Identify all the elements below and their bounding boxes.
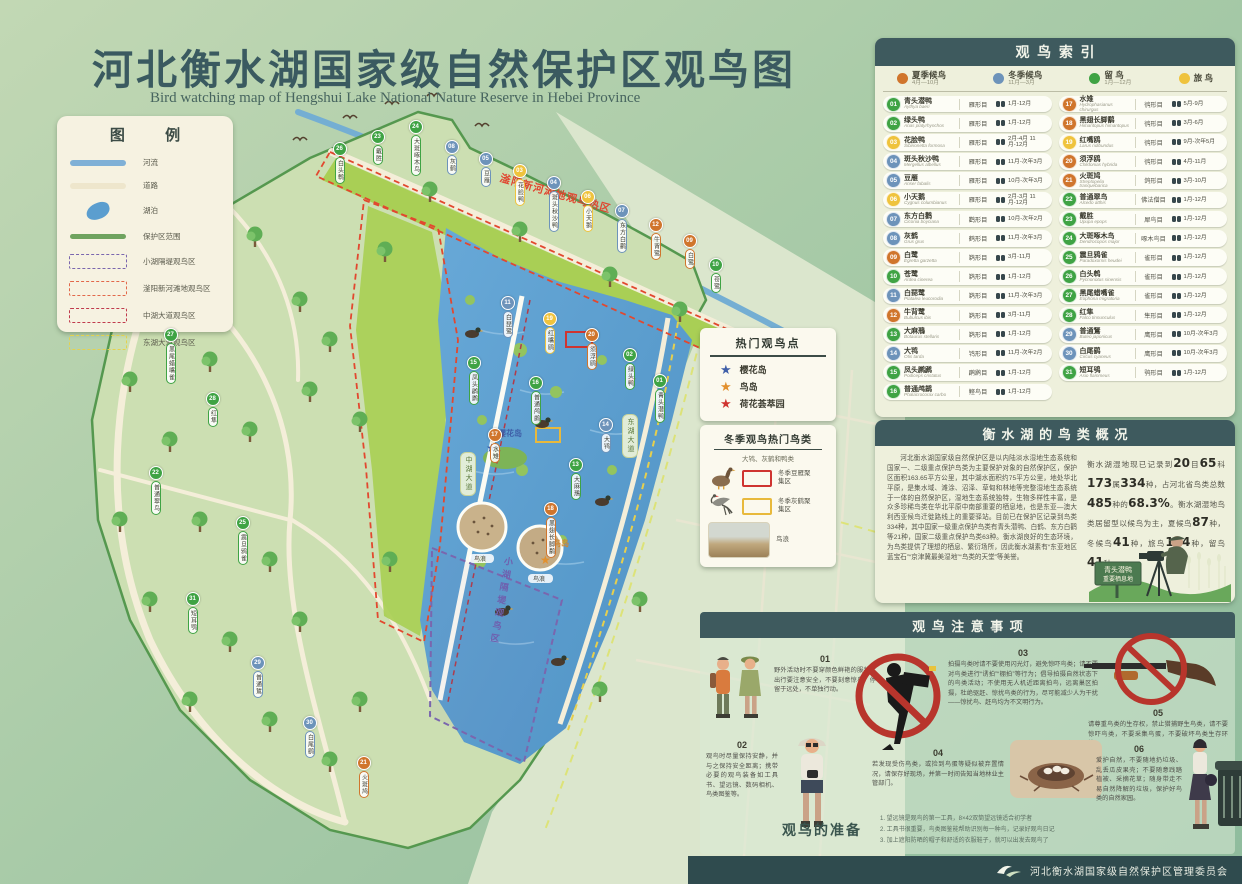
bird-latin-name: Otis tarda xyxy=(904,355,956,360)
binoculars-icon xyxy=(996,235,1005,241)
binoculars-icon xyxy=(996,370,1005,376)
winter-zone-goose: 冬季豆雁聚集区 xyxy=(708,466,828,490)
star-icon: ★ xyxy=(720,397,732,410)
nest-photo xyxy=(1010,740,1102,798)
flat-zone-swatch xyxy=(69,281,127,296)
bird-months: 5月-9月 xyxy=(1184,101,1225,107)
bird-latin-name: Streptopelia tranquebarica xyxy=(1080,180,1132,189)
season-legend: 夏季候鸟4月—10月 冬季候鸟11月—3月 留 鸟1月—12月 旅 鸟 xyxy=(883,66,1227,92)
binoculars-icon xyxy=(996,274,1005,280)
map-tag-28: 28红隼 xyxy=(205,392,220,427)
map-tag-31: 31短耳鸮 xyxy=(185,592,200,634)
bird-latin-name: Ciconia boyciana xyxy=(904,220,956,225)
photographer-illustration: 青头潜鸭 重要栖息地 xyxy=(1089,508,1231,602)
bird-order: 鸻形目 xyxy=(1139,100,1169,109)
bird-order: 鹳形目 xyxy=(963,215,993,224)
bird-months: 3月-11月 xyxy=(1008,254,1049,260)
bird-order: 隼形目 xyxy=(1139,311,1169,320)
bird-months: 1月-12月 xyxy=(1008,120,1049,126)
overview-intro: 河北衡水湖国家级自然保护区是以内陆淡水湿地生态系统和国家一、二级重点保护鸟类为主… xyxy=(887,454,1077,563)
bird-latin-name: Cygnus columbianus xyxy=(904,201,956,206)
overview-panel: 衡水湖的鸟类概况 河北衡水湖国家级自然保护区是以内陆淡水湿地生态系统和国家一、二… xyxy=(875,420,1235,603)
legend-item-flat-zone: 滏阳新河滩地观鸟区 xyxy=(57,275,233,302)
map-tag-03: 03花脸鸭 xyxy=(512,164,527,206)
bird-row-15: 15凤头䴙䴘Podiceps cristatus䴙䴘目1月-12月 xyxy=(883,364,1052,381)
bird-months: 1月-12月 xyxy=(1184,197,1225,203)
bird-order: 鸽形目 xyxy=(1139,176,1169,185)
footer-org: 河北衡水湖国家级自然保护区管理委员会 xyxy=(1030,863,1228,878)
bird-number-badge: 29 xyxy=(1062,327,1077,342)
bird-latin-name: Platalea leucorodia xyxy=(904,297,956,302)
bird-months: 11月-次年3月 xyxy=(1008,293,1049,299)
bird-latin-name: Bubulcus ibis xyxy=(904,316,956,321)
map-tag-19: 19红嘴鸥 xyxy=(542,312,557,354)
binoculars-icon xyxy=(1172,159,1181,165)
legend-item-dike-zone: 小湖隔堤观鸟区 xyxy=(57,248,233,275)
bird-row-10: 10苍鹭Ardea cinerea鹈形目1月-12月 xyxy=(883,268,1052,285)
bird-list: 01青头潜鸭Aythya baeri雁形目1月-12月17水雉Hydrophas… xyxy=(875,92,1235,404)
bird-number-badge: 17 xyxy=(1062,97,1077,112)
bird-months: 9月-次年5月 xyxy=(1184,139,1225,145)
bird-number-badge: 10 xyxy=(886,269,901,284)
bird-wave-photo xyxy=(708,522,770,558)
bird-latin-name: Chlidonias hybrida xyxy=(1080,163,1132,168)
bird-order: 雀形目 xyxy=(1139,291,1169,300)
bird-order: 雀形目 xyxy=(1139,253,1169,262)
bird-order: 䴙䴘目 xyxy=(963,368,993,377)
bird-row-28: 28红隼Falco tinnunculus隼形目1月-12月 xyxy=(1059,307,1228,324)
prep-title: 观鸟的准备 xyxy=(782,820,862,840)
bird-latin-name: Asio flammeus xyxy=(1080,374,1132,379)
bird-row-17: 17水雉Hydrophasianus chirurgus鸻形目5月-9月 xyxy=(1059,96,1228,113)
season-winter: 冬季候鸟11月—3月 xyxy=(993,71,1042,87)
bird-row-29: 29普通鵟Buteo japonicus鹰形目10月-次年3月 xyxy=(1059,326,1228,343)
legend-item-river: 河流 xyxy=(57,151,233,174)
bird-number-badge: 20 xyxy=(1062,154,1077,169)
mid-road-zone-swatch xyxy=(69,308,127,323)
bird-months: 11月-次年3月 xyxy=(1008,159,1049,165)
binoculars-icon xyxy=(1172,350,1181,356)
binoculars-icon xyxy=(1172,120,1181,126)
bird-number-badge: 08 xyxy=(886,231,901,246)
map-tag-06: 06小天鹅 xyxy=(580,190,595,232)
map-tag-02: 02绿头鸭 xyxy=(622,348,637,390)
crane-zone-swatch xyxy=(742,498,772,515)
binoculars-icon xyxy=(996,293,1005,299)
winter-dot-icon xyxy=(993,73,1004,84)
bird-latin-name: Phalacrocorax carbo xyxy=(904,393,956,398)
bird-latin-name: Upupa epops xyxy=(1080,220,1132,225)
bird-row-16: 16普通鸬鹚Phalacrocorax carbo鲣鸟目1月-12月 xyxy=(883,384,1052,401)
bird-row-07: 07东方白鹳Ciconia boyciana鹳形目10月-次年2月 xyxy=(883,211,1052,228)
binoculars-icon xyxy=(996,139,1005,145)
bird-index-panel: 观鸟索引 夏季候鸟4月—10月 冬季候鸟11月—3月 留 鸟1月—12月 旅 鸟… xyxy=(875,38,1235,417)
bird-months: 1月-12月 xyxy=(1184,235,1225,241)
bird-order: 鹈形目 xyxy=(963,311,993,320)
bird-latin-name: Larus ridibundus xyxy=(1080,144,1132,149)
bird-row-23: 23戴胜Upupa epops犀鸟目1月-12月 xyxy=(1059,211,1228,228)
svg-text:鸟浪: 鸟浪 xyxy=(474,555,486,563)
binoculars-icon xyxy=(1172,235,1181,241)
bird-latin-name: Dendrocopos major xyxy=(1080,240,1132,245)
legend-item-east-road-zone: 东湖大道观鸟区 xyxy=(57,329,233,356)
map-tag-09: 09白鹭 xyxy=(682,234,697,269)
footer-bar: 河北衡水湖国家级自然保护区管理委员会 xyxy=(688,856,1242,884)
prep-lines: 1. 望远镜是观鸟的第一工具，8×42双筒望远镜适合初学者 2. 工具书很重要，… xyxy=(880,814,1160,846)
bird-order: 雁形目 xyxy=(963,138,993,147)
map-tag-23: 23戴胜 xyxy=(370,130,385,165)
bird-latin-name: Alcedo atthis xyxy=(1080,201,1132,206)
boundary-swatch xyxy=(70,234,126,239)
winter-zone-crane: 冬季灰鹤聚集区 xyxy=(708,493,828,519)
bird-months: 11月-次年2月 xyxy=(1008,350,1049,356)
road-swatch xyxy=(70,183,126,189)
bird-months: 4月-11月 xyxy=(1184,159,1225,165)
map-tag-17: 17水雉 xyxy=(487,428,502,463)
bird-number-badge: 13 xyxy=(886,327,901,342)
bird-latin-name: Mergellus albellus xyxy=(904,163,956,168)
bird-number-badge: 19 xyxy=(1062,135,1077,150)
note-item-4: 04 若发现受伤鸟类，或捡到鸟蛋等疑似被弃置情况，请保存好现场，并第一时间告知当… xyxy=(872,748,1004,789)
binoculars-icon xyxy=(1172,255,1181,261)
binoculars-icon xyxy=(996,178,1005,184)
binoculars-icon xyxy=(1172,139,1181,145)
hotspot-cherry-island: ★ 樱花岛 xyxy=(720,363,826,376)
bird-row-31: 31短耳鸮Asio flammeus鸮形目1月-12月 xyxy=(1059,364,1228,381)
map-tag-07: 07东方白鹳 xyxy=(614,204,629,253)
winter-photo-row: 鸟浪 xyxy=(708,522,828,558)
bird-months: 1月-12月 xyxy=(1184,293,1225,299)
legend-title: 图 例 xyxy=(57,124,233,145)
bird-latin-name: Buteo japonicus xyxy=(1080,335,1132,340)
resident-dot-icon xyxy=(1089,73,1100,84)
bird-latin-name: Sibirionetta formosa xyxy=(904,144,956,149)
bird-number-badge: 30 xyxy=(1062,346,1077,361)
binoculars-icon xyxy=(996,350,1005,356)
bird-latin-name: Aythya baeri xyxy=(904,105,956,110)
binoculars-icon xyxy=(1172,293,1181,299)
binoculars-icon xyxy=(996,389,1005,395)
star-icon: ★ xyxy=(720,363,732,376)
binoculars-icon xyxy=(996,331,1005,337)
bird-row-09: 09白鹭Egretta garzetta鹈形目3月-11月 xyxy=(883,249,1052,266)
winter-birds-card: 冬季观鸟热门鸟类 大鸨、灰鹤和鸭类 冬季豆雁聚集区 冬季灰鹤聚集区 xyxy=(700,425,836,567)
bird-months: 1月-12月 xyxy=(1184,274,1225,280)
bird-row-08: 08灰鹤Grus grus鹤形目11月-次年3月 xyxy=(883,230,1052,247)
bird-latin-name: Falco tinnunculus xyxy=(1080,316,1132,321)
bird-latin-name: Anas platyrhynchos xyxy=(904,124,956,129)
bird-number-badge: 06 xyxy=(886,192,901,207)
bird-order: 鹰形目 xyxy=(1139,349,1169,358)
bird-latin-name: Pycnonotus sinensis xyxy=(1080,278,1132,283)
legend-item-mid-road-zone: 中湖大道观鸟区 xyxy=(57,302,233,329)
bird-row-02: 02绿头鸭Anas platyrhynchos雁形目1月-12月 xyxy=(883,115,1052,132)
bird-latin-name: Paradoxornis heudei xyxy=(1080,259,1132,264)
bird-order: 犀鸟目 xyxy=(1139,215,1169,224)
bird-row-27: 27黑尾蜡嘴雀Eophona migratoria雀形目1月-12月 xyxy=(1059,288,1228,305)
footer-logo-icon xyxy=(996,862,1022,878)
legend-card: 图 例 河流 道路 湖泊 保护区范围 小湖隔堤观鸟区 滏阳新河滩地观鸟区 中湖大… xyxy=(57,116,233,332)
map-tag-11: 11白琵鹭 xyxy=(500,296,515,338)
bird-order: 鸻形目 xyxy=(1139,138,1169,147)
goose-zone-swatch xyxy=(742,470,772,487)
bird-latin-name: Eophona migratoria xyxy=(1080,297,1132,302)
binoculars-icon xyxy=(996,120,1005,126)
bird-months: 3月-11月 xyxy=(1008,312,1049,318)
no-hunting-icon xyxy=(1076,630,1226,708)
dike-zone-swatch xyxy=(69,254,127,269)
bird-order: 鹈形目 xyxy=(963,253,993,262)
winter-card-title: 冬季观鸟热门鸟类 xyxy=(708,431,828,446)
map-tag-05: 05豆雁 xyxy=(478,152,493,187)
bird-latin-name: Hydrophasianus chirurgus xyxy=(1080,103,1132,112)
svg-text:青头潜鸭: 青头潜鸭 xyxy=(1104,565,1132,574)
binoculars-icon xyxy=(996,101,1005,107)
bird-watching-map-poster: 鸟浪 鸟浪 滏阳新河滩地观鸟热区 小湖隔堤观鸟区 樱花岛 ★ 鸟岛 ★ ★ 中湖… xyxy=(0,0,1242,884)
hotspots-title: 热门观鸟点 xyxy=(710,335,826,351)
summer-dot-icon xyxy=(897,73,908,84)
bird-number-badge: 04 xyxy=(886,154,901,169)
map-tag-08: 08灰鹤 xyxy=(444,140,459,175)
note-item-6: 06 爱护自然，不要随地扔垃圾、乱丢瓜皮果壳；不要随意践踏植被、采摘花草；随身带… xyxy=(1096,744,1182,804)
bird-months: 1月-12月 xyxy=(1008,389,1049,395)
bird-order: 鹈形目 xyxy=(963,330,993,339)
bird-number-badge: 02 xyxy=(886,116,901,131)
binoculars-icon xyxy=(996,312,1005,318)
map-tag-01: 01青头潜鸭 xyxy=(652,374,667,423)
bird-number-badge: 01 xyxy=(886,97,901,112)
bird-order: 鹈形目 xyxy=(963,272,993,281)
season-resident: 留 鸟1月—12月 xyxy=(1089,71,1131,87)
bird-order: 鸻形目 xyxy=(1139,157,1169,166)
bird-latin-name: Podiceps cristatus xyxy=(904,374,956,379)
east-road-zone-swatch xyxy=(69,335,127,350)
no-flash-icon xyxy=(850,644,946,754)
bird-number-badge: 07 xyxy=(886,212,901,227)
bird-order: 鲣鸟目 xyxy=(963,387,993,396)
bird-order: 雁形目 xyxy=(963,100,993,109)
binoculars-icon xyxy=(996,216,1005,222)
bird-number-badge: 09 xyxy=(886,250,901,265)
bird-number-badge: 25 xyxy=(1062,250,1077,265)
bird-row-12: 12牛背鹭Bubulcus ibis鹈形目3月-11月 xyxy=(883,307,1052,324)
bird-months: 1月-12月 xyxy=(1008,274,1049,280)
map-tag-20: 20须浮鸥 xyxy=(584,328,599,370)
map-tag-26: 26白头鹎 xyxy=(332,142,347,184)
bird-number-badge: 03 xyxy=(886,135,901,150)
notes-panel: 观鸟注意事项 01 野外活动时不要穿颜色鲜艳的服装，出行要注意安全，不要刻意惊鸟… xyxy=(700,612,1235,854)
bird-months: 11月-次年3月 xyxy=(1008,235,1049,241)
bird-order: 啄木鸟目 xyxy=(1139,234,1169,243)
bird-order: 鹤形目 xyxy=(963,234,993,243)
bird-months: 3月-6月 xyxy=(1184,120,1225,126)
map-tag-16: 16普通鸬鹚 xyxy=(528,376,543,425)
bird-months: 1月-12月 xyxy=(1008,331,1049,337)
bird-row-21: 21火斑鸠Streptopelia tranquebarica鸽形目3月-10月 xyxy=(1059,172,1228,189)
binoculars-icon xyxy=(1172,197,1181,203)
bird-latin-name: Egretta garzetta xyxy=(904,259,956,264)
star-icon: ★ xyxy=(720,380,732,393)
bird-row-14: 14大鸨Otis tarda鸨形目11月-次年2月 xyxy=(883,345,1052,362)
page-subtitle: Bird watching map of Hengshui Lake Natio… xyxy=(150,90,640,107)
bird-months: 1月-12月 xyxy=(1008,370,1049,376)
map-tag-22: 22普通翠鸟 xyxy=(148,466,163,515)
bird-months: 10月-次年2月 xyxy=(1008,216,1049,222)
bird-number-badge: 21 xyxy=(1062,173,1077,188)
bird-row-25: 25震旦鸦雀Paradoxornis heudei雀形目1月-12月 xyxy=(1059,249,1228,266)
bird-row-22: 22普通翠鸟Alcedo atthis佛法僧目1月-12月 xyxy=(1059,192,1228,209)
bird-number-badge: 16 xyxy=(886,384,901,399)
bird-row-19: 19红嘴鸥Larus ridibundus鸻形目9月-次年5月 xyxy=(1059,134,1228,151)
bird-order: 雀形目 xyxy=(1139,272,1169,281)
bird-months: 1月-12月 xyxy=(1184,254,1225,260)
bird-order: 鸨形目 xyxy=(963,349,993,358)
bird-number-badge: 11 xyxy=(886,288,901,303)
map-tag-29: 29普通鵟 xyxy=(250,656,265,698)
legend-item-boundary: 保护区范围 xyxy=(57,225,233,248)
map-tag-24: 24大斑啄木鸟 xyxy=(408,120,423,176)
bird-number-badge: 26 xyxy=(1062,269,1077,284)
bird-months: 2月-3月 11月-12月 xyxy=(1008,194,1049,206)
map-tag-30: 30白尾鹞 xyxy=(302,716,317,758)
bird-number-badge: 28 xyxy=(1062,308,1077,323)
bird-number-badge: 15 xyxy=(886,365,901,380)
map-tag-25: 25震旦鸦雀 xyxy=(235,516,250,565)
bird-order: 佛法僧目 xyxy=(1139,195,1169,204)
binoculars-icon xyxy=(996,159,1005,165)
bird-order: 雁形目 xyxy=(963,176,993,185)
map-tag-10: 10苍鹭 xyxy=(708,258,723,293)
bird-months: 2月-4月 11月-12月 xyxy=(1008,136,1049,148)
river-swatch xyxy=(70,160,126,166)
season-passage: 旅 鸟 xyxy=(1179,73,1213,84)
season-summer: 夏季候鸟4月—10月 xyxy=(897,71,946,87)
binoculars-icon xyxy=(1172,370,1181,376)
bird-months: 1月-12月 xyxy=(1184,370,1225,376)
binoculars-icon xyxy=(1172,101,1181,107)
map-tag-27: 27黑尾蜡嘴雀 xyxy=(163,328,178,384)
bird-row-30: 30白尾鹞Circus cyaneus鹰形目10月-次年3月 xyxy=(1059,345,1228,362)
bird-number-badge: 24 xyxy=(1062,231,1077,246)
svg-text:鸟浪: 鸟浪 xyxy=(533,575,545,583)
note-item-2: 02 观鸟时尽量保持安静，并与之保持安全距离；携带必要的观鸟装备如工具书、望远镜… xyxy=(706,740,778,800)
svg-text:重要栖息地: 重要栖息地 xyxy=(1103,575,1133,583)
bird-row-05: 05豆雁Anser fabalis雁形目10月-次年3月 xyxy=(883,172,1052,189)
bird-row-26: 26白头鹎Pycnonotus sinensis雀形目1月-12月 xyxy=(1059,268,1228,285)
overview-title: 衡水湖的鸟类概况 xyxy=(875,420,1235,446)
hotspot-lotus-garden: ★ 荷花荟萃园 xyxy=(720,397,826,410)
bird-row-13: 13大麻鳽Botaurus stellaris鹈形目1月-12月 xyxy=(883,326,1052,343)
bird-number-badge: 05 xyxy=(886,173,901,188)
bird-index-title: 观鸟索引 xyxy=(875,38,1235,66)
goose-icon xyxy=(708,466,736,490)
binoculars-icon xyxy=(1172,274,1181,280)
binoculars-icon xyxy=(996,255,1005,261)
bird-row-01: 01青头潜鸭Aythya baeri雁形目1月-12月 xyxy=(883,96,1052,113)
hotspot-bird-island: ★ 鸟岛 xyxy=(720,380,826,393)
bird-months: 1月-12月 xyxy=(1184,216,1225,222)
map-tag-14: 14大鸨 xyxy=(598,418,613,453)
bird-row-06: 06小天鹅Cygnus columbianus雁形目2月-3月 11月-12月 xyxy=(883,192,1052,209)
bird-row-04: 04斑头秋沙鸭Mergellus albellus雁形目11月-次年3月 xyxy=(883,153,1052,170)
binoculars-icon xyxy=(1172,178,1181,184)
bird-months: 10月-次年3月 xyxy=(1008,178,1049,184)
map-tag-15: 15凤头䴙䴘 xyxy=(466,356,481,405)
bird-row-11: 11白琵鹭Platalea leucorodia鹈形目11月-次年3月 xyxy=(883,288,1052,305)
bird-order: 鹈形目 xyxy=(963,291,993,300)
lake-swatch xyxy=(84,200,112,223)
map-tag-21: 21火斑鸠 xyxy=(356,756,371,798)
litter-illustration xyxy=(1184,734,1242,840)
bird-months: 1月-12月 xyxy=(1008,101,1049,107)
legend-item-road: 道路 xyxy=(57,174,233,197)
bird-months: 10月-次年3月 xyxy=(1184,331,1225,337)
map-road-east-label: 东湖大道 xyxy=(622,414,638,458)
bird-latin-name: Circus cyaneus xyxy=(1080,355,1132,360)
winter-card-subtitle: 大鸨、灰鹤和鸭类 xyxy=(708,453,828,463)
bird-number-badge: 18 xyxy=(1062,116,1077,131)
map-road-mid-label: 中湖大道 xyxy=(460,452,476,496)
bird-months: 3月-10月 xyxy=(1184,178,1225,184)
bird-latin-name: Grus grus xyxy=(904,240,956,245)
bird-row-18: 18黑翅长脚鹬Himantopus himantopus鸻形目3月-6月 xyxy=(1059,115,1228,132)
legend-item-lake: 湖泊 xyxy=(57,197,233,225)
bird-months: 10月-次年3月 xyxy=(1184,350,1225,356)
bird-number-badge: 14 xyxy=(886,346,901,361)
bird-number-badge: 12 xyxy=(886,308,901,323)
bird-latin-name: Ardea cinerea xyxy=(904,278,956,283)
bird-order: 鹰形目 xyxy=(1139,330,1169,339)
bird-number-badge: 27 xyxy=(1062,288,1077,303)
bird-number-badge: 22 xyxy=(1062,192,1077,207)
bird-row-03: 03花脸鸭Sibirionetta formosa雁形目2月-4月 11月-12… xyxy=(883,134,1052,151)
bird-number-badge: 23 xyxy=(1062,212,1077,227)
map-tag-13: 13大麻鳽 xyxy=(568,458,583,500)
map-tag-12: 12牛背鹭 xyxy=(648,218,663,260)
page-title: 河北衡水湖国家级自然保护区观鸟图 xyxy=(92,36,796,96)
bird-order: 鸻形目 xyxy=(1139,119,1169,128)
binoculars-icon xyxy=(1172,312,1181,318)
bird-months: 1月-12月 xyxy=(1184,312,1225,318)
binoculars-icon xyxy=(996,197,1005,203)
bird-row-20: 20须浮鸥Chlidonias hybrida鸻形目4月-11月 xyxy=(1059,153,1228,170)
hotspots-card: 热门观鸟点 ★ 樱花岛 ★ 鸟岛 ★ 荷花荟萃园 xyxy=(700,328,836,421)
bird-row-24: 24大斑啄木鸟Dendrocopos major啄木鸟目1月-12月 xyxy=(1059,230,1228,247)
bird-order: 雁形目 xyxy=(963,119,993,128)
bird-latin-name: Anser fabalis xyxy=(904,182,956,187)
bird-order: 鸮形目 xyxy=(1139,368,1169,377)
bird-order: 雁形目 xyxy=(963,195,993,204)
binoculars-icon xyxy=(1172,216,1181,222)
map-tag-18: 18黑翅长脚鹬 xyxy=(543,502,558,558)
bird-order: 雁形目 xyxy=(963,157,993,166)
bird-latin-name: Botaurus stellaris xyxy=(904,335,956,340)
bird-number-badge: 31 xyxy=(1062,365,1077,380)
binoculars-icon xyxy=(1172,331,1181,337)
bird-latin-name: Himantopus himantopus xyxy=(1080,124,1132,129)
passage-dot-icon xyxy=(1179,73,1190,84)
map-tag-04: 04斑头秋沙鸭 xyxy=(546,176,561,232)
crane-icon xyxy=(708,493,736,519)
